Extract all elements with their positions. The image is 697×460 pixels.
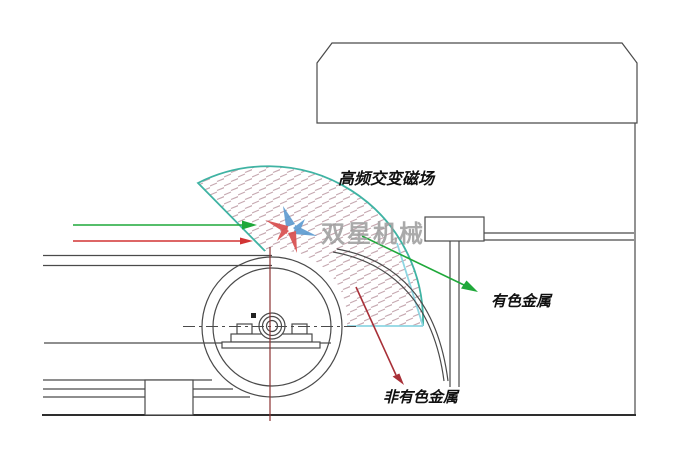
frame-leg-block — [145, 380, 193, 415]
feed-arrow-red — [73, 238, 253, 245]
hood-box — [317, 43, 637, 123]
pillow-block-bearing — [222, 313, 320, 348]
feed-arrow-green — [73, 221, 257, 230]
watermark-text: 双星机械 — [321, 214, 425, 249]
grease-fitting-dot — [251, 313, 256, 318]
eddy-current-separator-diagram: 高频交变磁场 有色金属 非有色金属 双星机械 — [0, 0, 697, 460]
label-nonferrous-metal: 有色金属 — [491, 294, 551, 309]
label-magnetic-field: 高频交变磁场 — [338, 172, 434, 188]
label-non-nonferrous-metal: 非有色金属 — [383, 390, 458, 405]
